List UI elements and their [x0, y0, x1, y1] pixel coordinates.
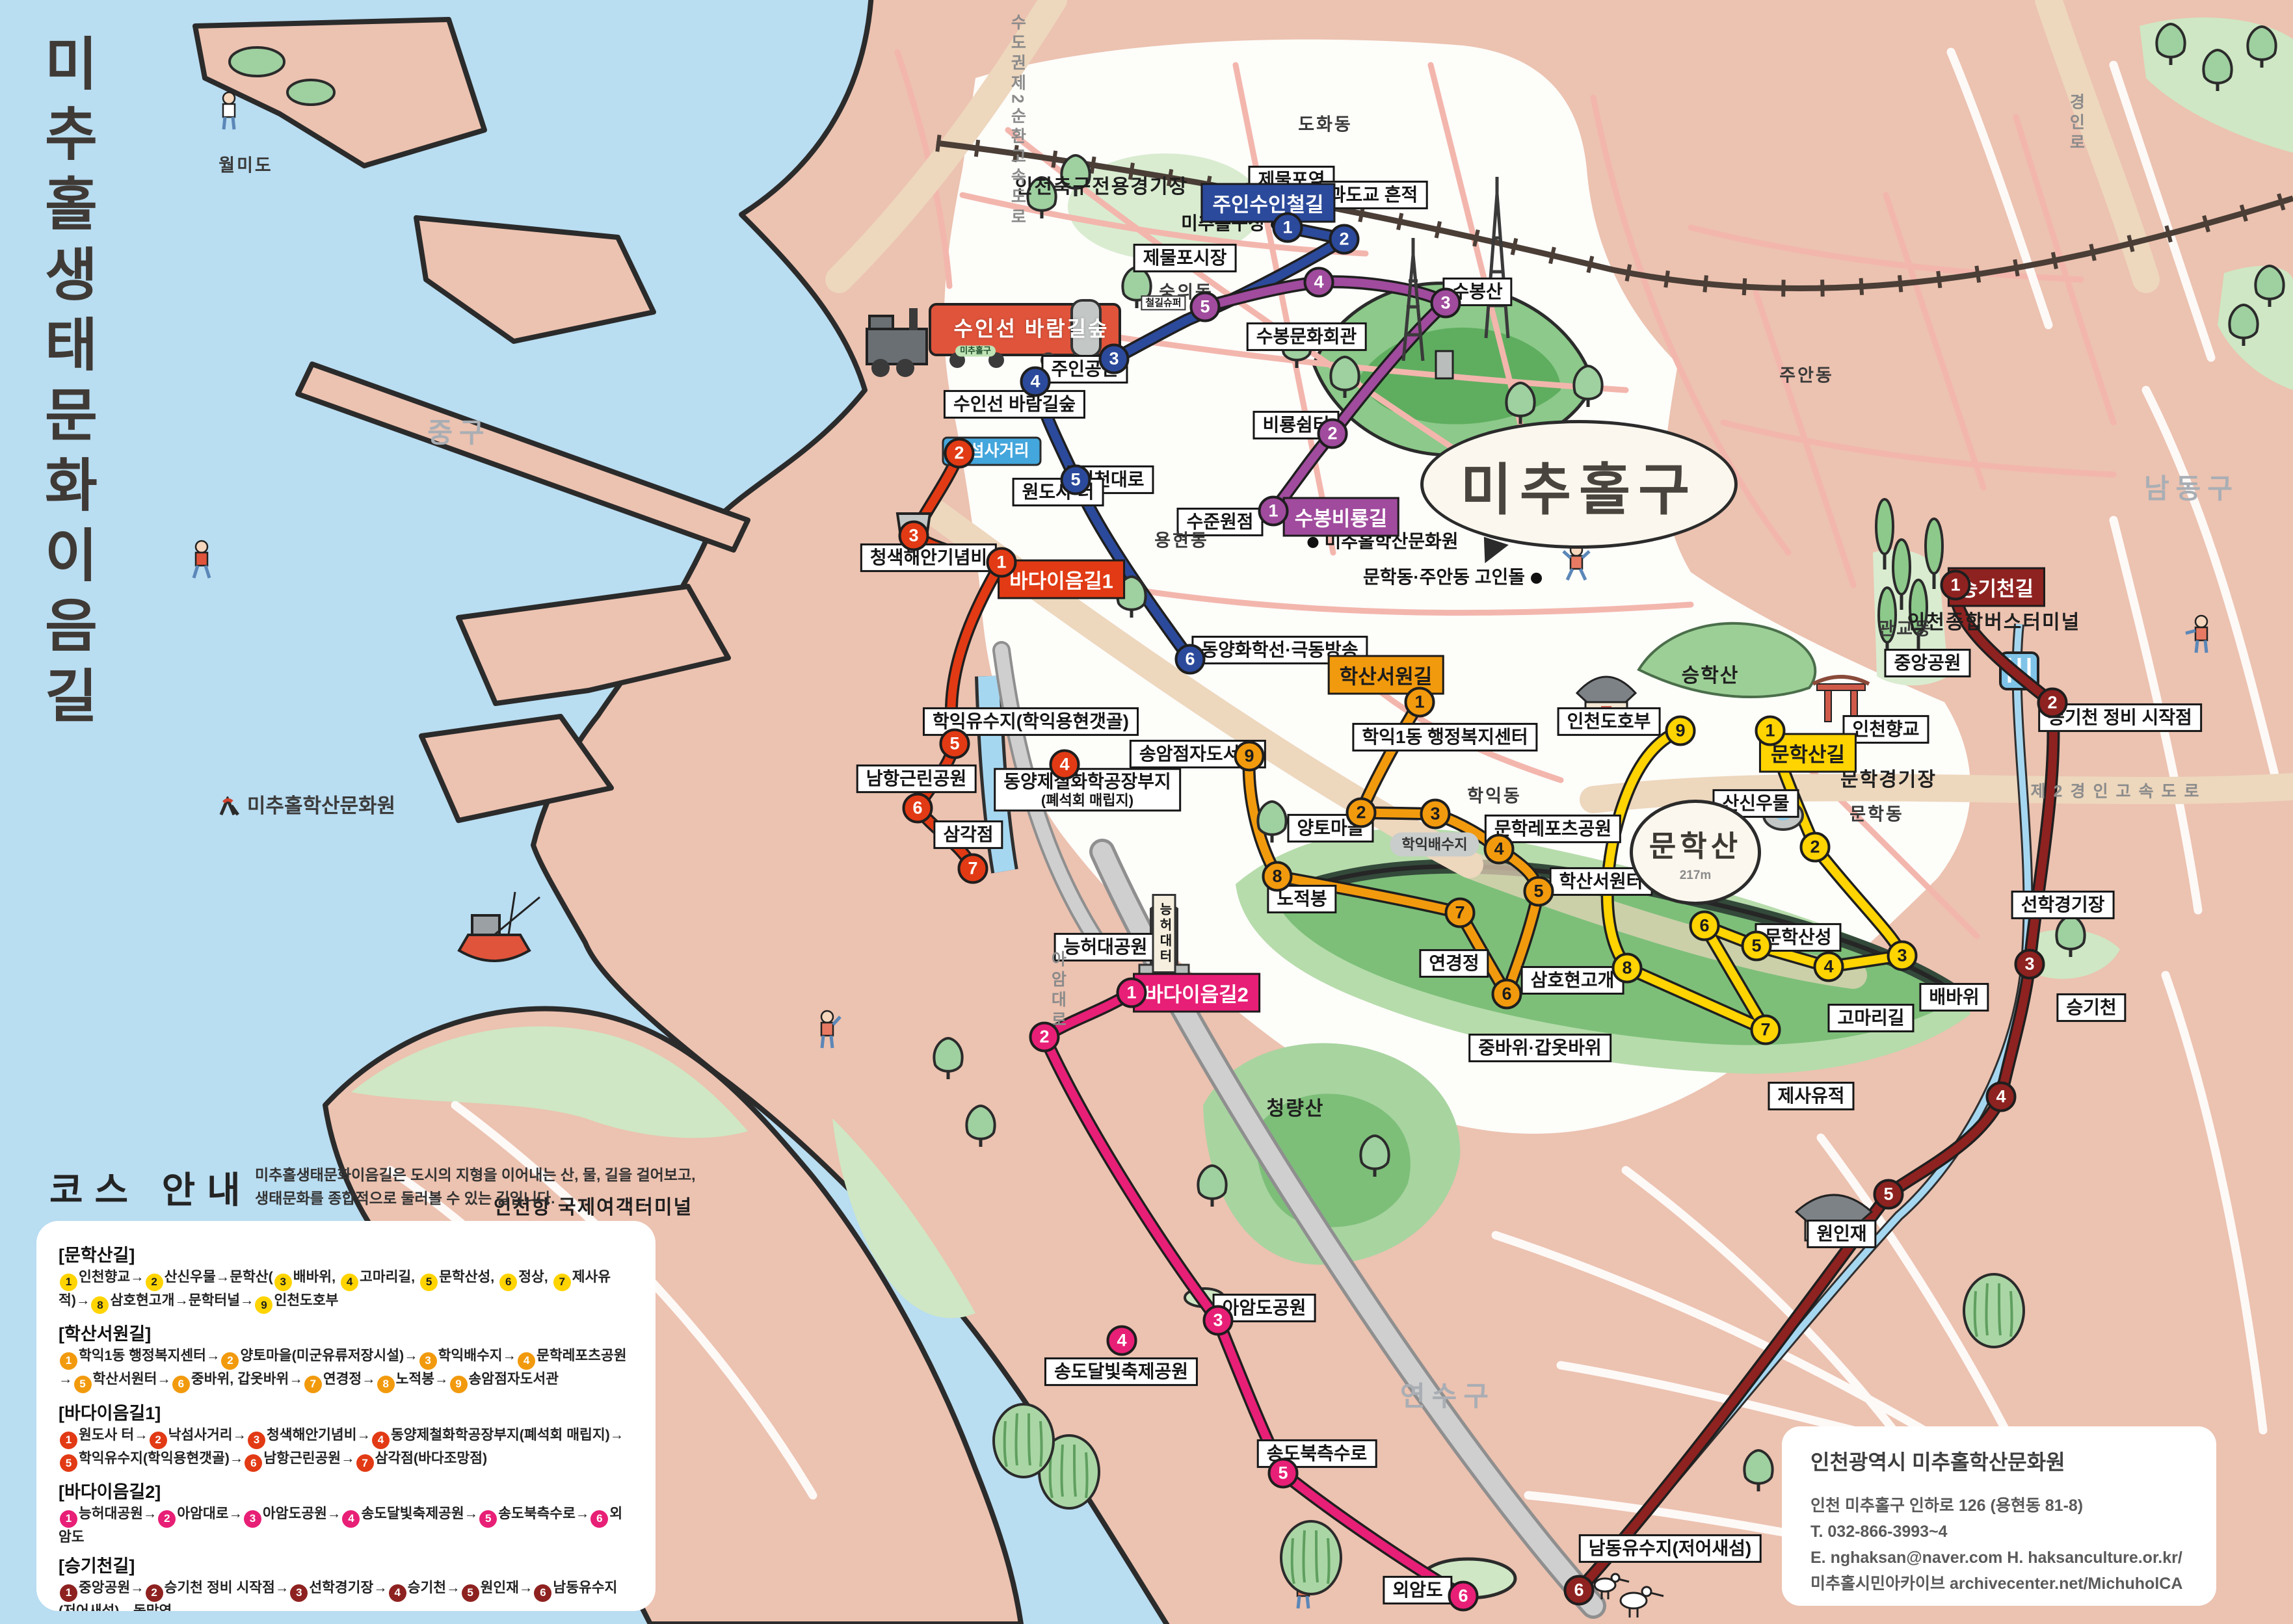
- munhaksan-bubble: 문학산 217m: [1630, 800, 1761, 905]
- poster-title: 미추홀생태문화이음길: [38, 34, 95, 736]
- district-bubble-text: 미추홀구: [1461, 444, 1697, 525]
- course-line-bada1: 1원도사 터→2낙섬사거리→3청색해안기념비→4동양제철화학공장부지(폐석회 매…: [59, 1426, 633, 1472]
- course-line-seunggi: 1중앙공원→2승기천 정비 시작점→3선학경기장→4승기천→5원인재→6남동유수…: [59, 1578, 633, 1611]
- guide-badge-bada1-2: 2: [150, 1432, 167, 1449]
- course-line-haksan: 1학익1동 행정복지센터→2양토마을(미군유류저장시설)→3학익배수지→4문학레…: [59, 1346, 633, 1393]
- course-guide-title: 코스 안내: [49, 1161, 252, 1214]
- munhaksan-bubble-text: 문학산: [1649, 822, 1742, 865]
- guide-badge-munhaksan-6: 6: [499, 1274, 517, 1291]
- guide-badge-bada2-1: 1: [60, 1510, 77, 1528]
- guide-badge-seunggi-6: 6: [534, 1584, 551, 1602]
- juin-stone: [1072, 300, 1100, 356]
- guide-badge-haksan-2: 2: [221, 1352, 239, 1370]
- org-info-box: 인천광역시 미추홀학산문화원 인천 미추홀구 인하로 126 (용현동 81-8…: [1782, 1426, 2216, 1606]
- guide-badge-bada2-5: 5: [479, 1510, 497, 1528]
- org-name: 인천광역시 미추홀학산문화원: [1810, 1446, 2188, 1476]
- course-line-munhaksan: 1인천향교→2산신우물→문학산(3배바위, 4고마리길, 5문학산성, 6정상,…: [59, 1268, 633, 1314]
- guide-badge-seunggi-5: 5: [462, 1584, 479, 1602]
- guide-badge-bada1-5: 5: [60, 1454, 77, 1472]
- guide-badge-seunggi-1: 1: [60, 1584, 77, 1602]
- guide-badge-munhaksan-9: 9: [255, 1296, 272, 1314]
- org-archive: 미추홀시민아카이브 archivecenter.net/MichuholCA: [1810, 1571, 2188, 1597]
- course-header-munhaksan: [문학산길]: [59, 1241, 633, 1266]
- guide-badge-haksan-9: 9: [450, 1376, 468, 1393]
- guide-badge-munhaksan-2: 2: [146, 1274, 163, 1291]
- guide-badge-haksan-7: 7: [304, 1376, 322, 1393]
- guide-badge-haksan-3: 3: [419, 1352, 437, 1370]
- course-header-bada2: [바다이음길2]: [59, 1478, 633, 1503]
- district-speech-bubble: 미추홀구: [1420, 420, 1738, 549]
- guide-badge-bada1-4: 4: [372, 1432, 390, 1449]
- guide-desc-line-2: 생태문화를 종합적으로 둘러볼 수 있는 길입니다.: [255, 1187, 696, 1211]
- org-phone: T. 032-866-3993~4: [1810, 1519, 2188, 1545]
- guide-badge-haksan-5: 5: [74, 1376, 92, 1393]
- course-line-bada2: 1능허대공원→2아암대로→3아암도공원→4송도달빛축제공원→5송도북측수로→6외…: [59, 1504, 633, 1546]
- guide-badge-munhaksan-5: 5: [420, 1274, 438, 1291]
- guide-badge-munhaksan-8: 8: [91, 1296, 109, 1314]
- guide-badge-bada2-2: 2: [158, 1510, 176, 1528]
- guide-desc-line-1: 미추홀생태문화이음길은 도시의 지형을 이어내는 산, 물, 길을 걸어보고,: [255, 1164, 696, 1187]
- guide-badge-haksan-8: 8: [377, 1376, 395, 1393]
- guide-badge-bada2-6: 6: [590, 1510, 608, 1528]
- map-poster: .ru{fill:none;stroke:#1f1f1f;stroke-widt…: [0, 0, 2293, 1624]
- guide-badge-haksan-6: 6: [172, 1376, 190, 1393]
- course-guide-box: [문학산길]1인천향교→2산신우물→문학산(3배바위, 4고마리길, 5문학산성…: [36, 1221, 656, 1611]
- course-header-bada1: [바다이음길1]: [59, 1399, 633, 1424]
- course-guide-description: 미추홀생태문화이음길은 도시의 지형을 이어내는 산, 물, 길을 걸어보고, …: [255, 1164, 696, 1210]
- guide-badge-bada1-6: 6: [245, 1454, 262, 1472]
- guide-badge-seunggi-3: 3: [290, 1584, 308, 1602]
- guide-badge-bada2-4: 4: [342, 1510, 360, 1528]
- sansin-well-illustration: [1764, 801, 1803, 830]
- guide-badge-munhaksan-3: 3: [274, 1274, 292, 1291]
- guide-badge-munhaksan-4: 4: [341, 1274, 358, 1291]
- guide-badge-haksan-4: 4: [518, 1352, 535, 1370]
- guide-badge-bada2-3: 3: [244, 1510, 261, 1528]
- org-address: 인천 미추홀구 인하로 126 (용현동 81-8): [1810, 1493, 2188, 1519]
- guide-badge-munhaksan-1: 1: [60, 1274, 77, 1291]
- course-header-haksan: [학산서원길]: [59, 1320, 633, 1345]
- course-header-seunggi: [승기천길]: [59, 1552, 633, 1577]
- guide-badge-seunggi-2: 2: [146, 1584, 163, 1602]
- guide-badge-munhaksan-7: 7: [553, 1274, 571, 1291]
- guide-badge-bada1-3: 3: [248, 1432, 265, 1449]
- guide-badge-bada1-1: 1: [60, 1432, 77, 1449]
- course-list: [문학산길]1인천향교→2산신우물→문학산(3배바위, 4고마리길, 5문학산성…: [59, 1241, 633, 1611]
- guide-badge-bada1-7: 7: [356, 1454, 374, 1472]
- munhaksan-elevation: 217m: [1680, 869, 1712, 883]
- guide-badge-haksan-1: 1: [60, 1352, 77, 1370]
- coast-monument: [897, 514, 930, 541]
- guide-badge-seunggi-4: 4: [389, 1584, 406, 1602]
- org-email-web: E. nghaksan@naver.com H. haksanculture.o…: [1810, 1545, 2188, 1571]
- boat-illustration: [459, 892, 540, 961]
